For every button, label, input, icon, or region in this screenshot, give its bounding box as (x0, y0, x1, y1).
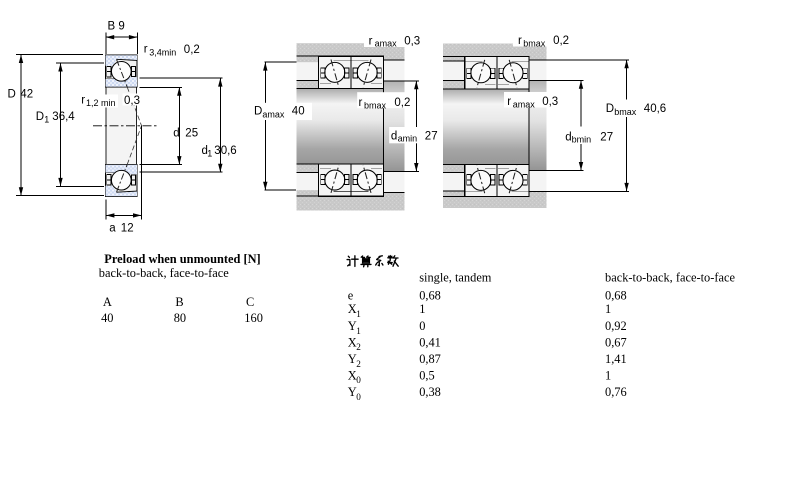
svg-text:r: r (144, 44, 148, 56)
svg-text:d: d (391, 131, 397, 143)
svg-text:D: D (254, 106, 262, 118)
svg-text:1: 1 (44, 114, 49, 124)
svg-text:r: r (81, 95, 85, 107)
svg-text:0,92: 0,92 (605, 319, 627, 333)
svg-text:80: 80 (174, 311, 186, 325)
svg-text:40,6: 40,6 (644, 103, 666, 115)
svg-text:amax: amax (375, 39, 398, 49)
svg-text:bmax: bmax (523, 38, 546, 48)
svg-text:r: r (507, 96, 511, 108)
svg-text:160: 160 (244, 311, 263, 325)
svg-text:36,4: 36,4 (52, 111, 75, 123)
svg-text:r: r (369, 35, 373, 47)
svg-text:amin: amin (398, 134, 418, 144)
svg-text:back-to-back, face-to-face: back-to-back, face-to-face (605, 271, 736, 285)
svg-text:1: 1 (419, 302, 425, 316)
svg-text:D: D (606, 103, 614, 115)
svg-text:1: 1 (356, 326, 361, 336)
svg-text:0,2: 0,2 (553, 35, 569, 47)
svg-text:C: C (246, 295, 254, 309)
svg-text:back-to-back, face-to-face: back-to-back, face-to-face (99, 266, 230, 280)
svg-text:0,87: 0,87 (419, 352, 441, 366)
svg-text:0,76: 0,76 (605, 385, 627, 399)
svg-text:1: 1 (605, 368, 611, 382)
svg-text:1: 1 (207, 149, 212, 159)
svg-text:B 9: B 9 (108, 20, 125, 32)
svg-text:0,3: 0,3 (124, 95, 140, 107)
svg-text:0: 0 (356, 375, 361, 385)
svg-text:1: 1 (356, 309, 361, 319)
svg-text:0,3: 0,3 (404, 35, 420, 47)
svg-text:d: d (173, 128, 179, 140)
svg-text:A: A (103, 295, 112, 309)
svg-text:1: 1 (605, 302, 611, 316)
svg-text:r: r (359, 97, 363, 109)
svg-text:1,2 min: 1,2 min (86, 98, 116, 108)
svg-text:0,3: 0,3 (542, 96, 558, 108)
svg-text:0,38: 0,38 (419, 385, 441, 399)
svg-text:0: 0 (356, 392, 361, 402)
svg-text:0,68: 0,68 (419, 288, 441, 302)
svg-text:42: 42 (20, 89, 33, 101)
svg-text:Preload when unmounted [N]: Preload when unmounted [N] (104, 252, 260, 266)
svg-text:0,41: 0,41 (419, 335, 441, 349)
svg-text:0,2: 0,2 (184, 44, 200, 56)
svg-text:0,2: 0,2 (394, 97, 410, 109)
svg-text:B: B (175, 295, 183, 309)
svg-text:e: e (348, 288, 354, 302)
svg-text:0: 0 (419, 319, 425, 333)
svg-text:bmin: bmin (572, 135, 592, 145)
svg-text:D: D (36, 111, 44, 123)
svg-text:single, tandem: single, tandem (419, 271, 492, 285)
svg-text:30,6: 30,6 (214, 145, 236, 157)
svg-text:40: 40 (101, 311, 113, 325)
svg-text:D: D (8, 89, 16, 101)
svg-text:0,67: 0,67 (605, 335, 627, 349)
svg-text:1,41: 1,41 (605, 352, 627, 366)
svg-text:0,68: 0,68 (605, 288, 627, 302)
svg-text:r: r (518, 35, 522, 47)
svg-text:amax: amax (262, 109, 285, 119)
svg-text:2: 2 (356, 342, 361, 352)
svg-text:amax: amax (513, 99, 536, 109)
svg-text:27: 27 (425, 131, 438, 143)
svg-text:25: 25 (185, 128, 198, 140)
svg-text:27: 27 (600, 131, 613, 143)
svg-text:bmax: bmax (614, 107, 637, 117)
svg-text:a: a (109, 223, 116, 235)
svg-text:40: 40 (292, 106, 305, 118)
svg-text:12: 12 (121, 223, 134, 235)
svg-text:3,4min: 3,4min (149, 48, 176, 58)
svg-text:0,5: 0,5 (419, 368, 435, 382)
svg-text:bmax: bmax (364, 100, 387, 110)
svg-text:2: 2 (356, 359, 361, 369)
